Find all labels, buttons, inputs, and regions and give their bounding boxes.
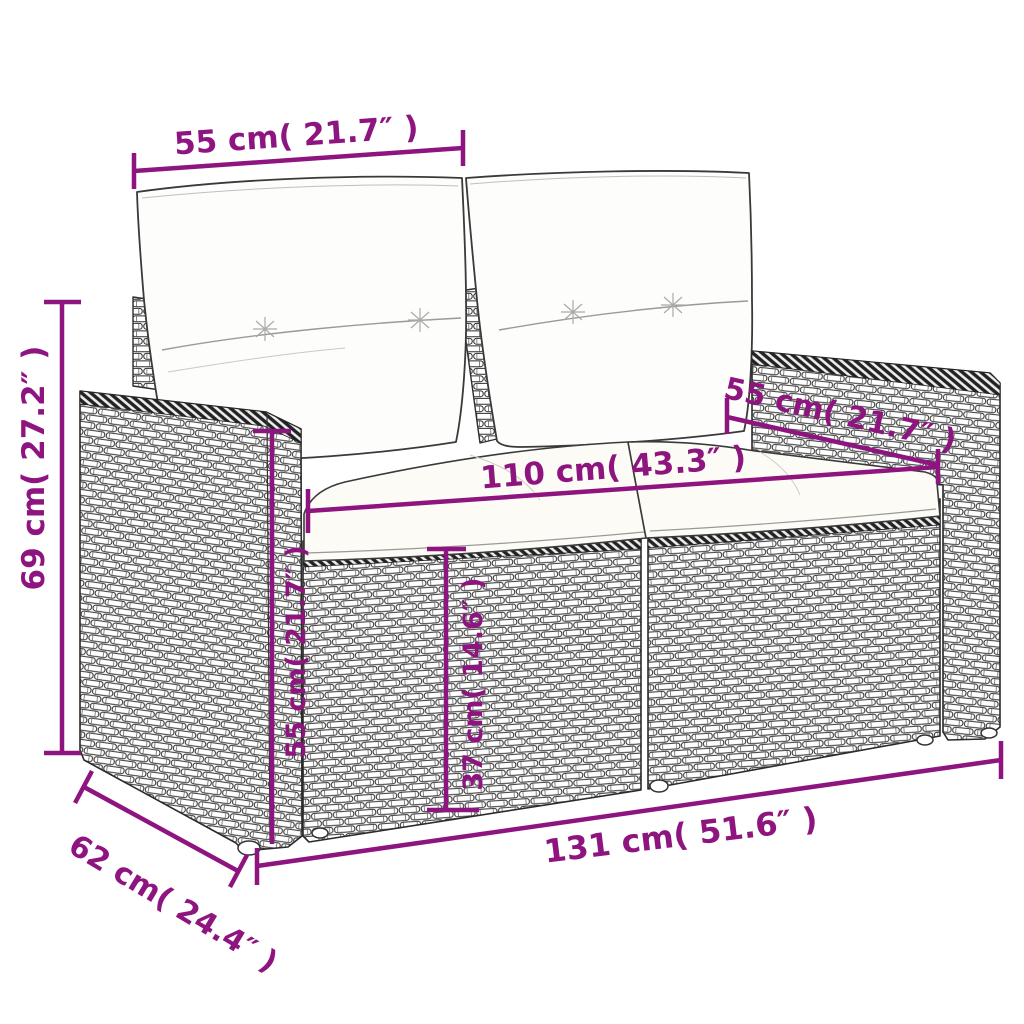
back-cushion-right — [466, 171, 752, 447]
product-dimension-diagram: 55 cm( 21.7″ ) 69 cm( 27.2″ ) 55 cm( 21.… — [0, 0, 1024, 1024]
dim-overall-height-label: 69 cm( 27.2″ ) — [16, 346, 52, 591]
foot — [312, 828, 328, 838]
left-armrest — [80, 391, 302, 851]
dim-seat-height-label: 37 cm( 14.6″ ) — [458, 577, 489, 790]
dim-armrest-height-label: 55 cm( 21.7″ ) — [281, 545, 312, 758]
sofa-dimension-illustration: 55 cm( 21.7″ ) 69 cm( 27.2″ ) 55 cm( 21.… — [0, 0, 1024, 1024]
foot — [981, 728, 997, 738]
foot — [650, 780, 668, 792]
dim-overall-width-label: 131 cm( 51.6″ ) — [542, 799, 820, 870]
foot — [917, 735, 933, 745]
dim-tick — [230, 855, 247, 887]
sofa-drawing — [80, 171, 1000, 855]
dim-tick — [75, 771, 92, 803]
